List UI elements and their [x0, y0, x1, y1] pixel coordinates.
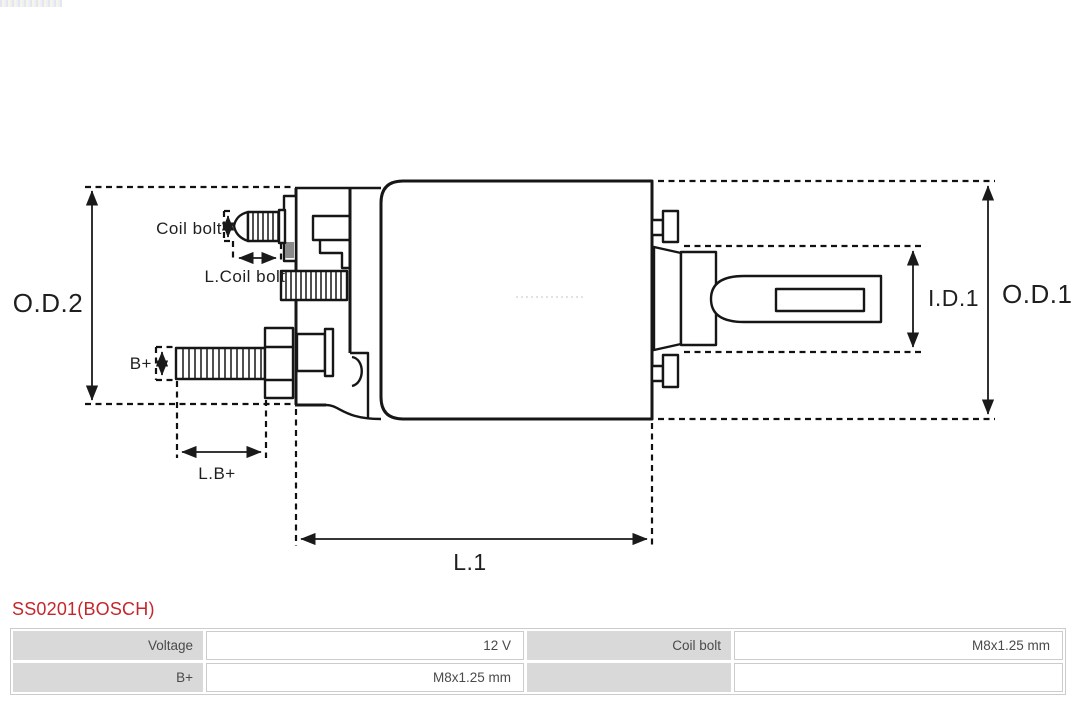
spec-value-coil-bolt: M8x1.25 mm	[734, 631, 1063, 660]
rear-terminal-top	[663, 211, 678, 242]
bracket-step-notch	[313, 216, 350, 240]
l1-label: L.1	[453, 549, 486, 575]
product-title: SS0201(BOSCH)	[12, 599, 155, 620]
solenoid-body-drawing	[176, 181, 881, 419]
spec-label-voltage: Voltage	[13, 631, 203, 660]
spec-table-row: Voltage 12 V Coil bolt M8x1.25 mm	[13, 631, 1063, 660]
id1-label: I.D.1	[928, 285, 979, 311]
solenoid-technical-drawing: O.D.2 Coil bolt L.Coil bolt B+ L.B+ L.1 …	[0, 0, 1080, 701]
spec-label-coil-bolt: Coil bolt	[527, 631, 731, 660]
bplus-hex-nut	[265, 328, 293, 398]
od2-label: O.D.2	[13, 288, 83, 318]
l-coil-bolt-label: L.Coil bolt	[204, 267, 285, 286]
rear-collar-taper	[654, 247, 681, 350]
spec-label-empty	[527, 663, 731, 692]
spec-value-empty	[734, 663, 1063, 692]
spec-table: Voltage 12 V Coil bolt M8x1.25 mm B+ M8x…	[10, 628, 1066, 695]
od1-label: O.D.1	[1002, 279, 1072, 309]
spec-value-b-plus: M8x1.25 mm	[206, 663, 524, 692]
spec-value-voltage: 12 V	[206, 631, 524, 660]
rear-terminal-bottom	[663, 355, 678, 387]
bplus-through-bolt	[297, 334, 325, 371]
plunger-slot	[776, 289, 864, 311]
spec-label-b-plus: B+	[13, 663, 203, 692]
bracket-boot-curve	[326, 405, 381, 419]
bplus-washer	[325, 329, 333, 376]
spec-table-row: B+ M8x1.25 mm	[13, 663, 1063, 692]
solenoid-main-body	[381, 181, 652, 419]
b-plus-label: B+	[130, 354, 152, 373]
coil-bolt-label: Coil bolt	[156, 219, 222, 238]
rear-terminal-top-neck	[652, 220, 663, 235]
rear-terminal-bottom-neck	[652, 366, 663, 381]
l-b-plus-label: L.B+	[198, 464, 235, 483]
coil-bolt-collar	[279, 210, 285, 243]
coil-bolt-tip	[234, 212, 248, 241]
boot-bulge-arc	[352, 357, 362, 386]
bracket-step-notch-2	[320, 240, 350, 268]
